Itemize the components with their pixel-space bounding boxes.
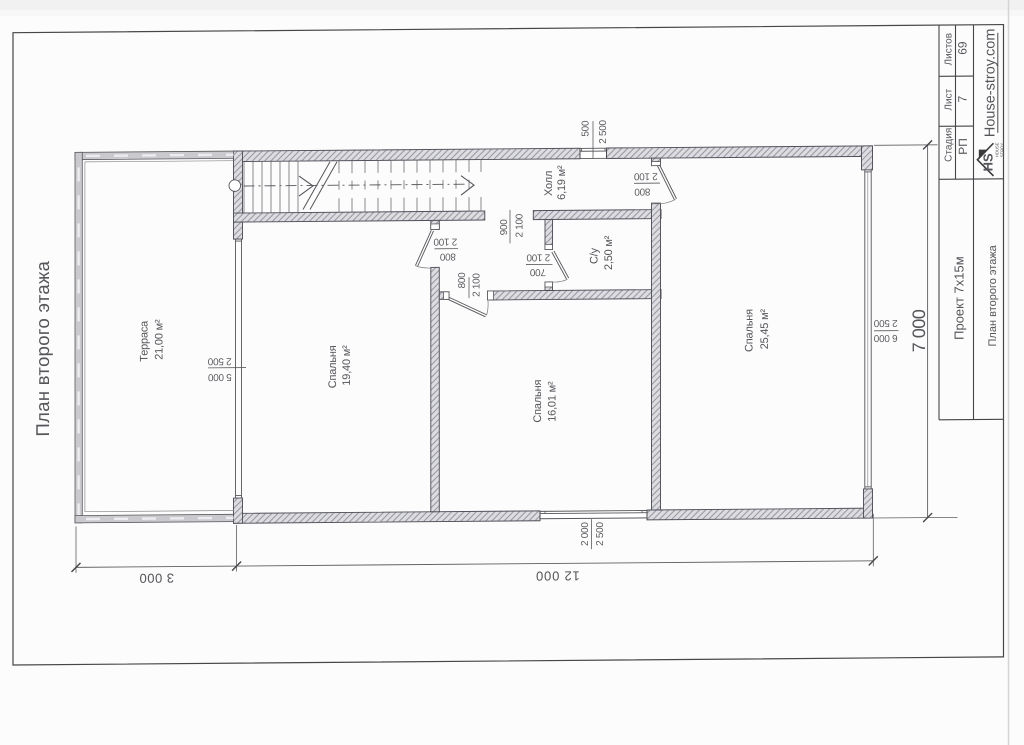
- svg-text:500: 500: [581, 120, 592, 137]
- svg-text:800: 800: [634, 186, 651, 197]
- svg-text:6,19 м²: 6,19 м²: [556, 165, 568, 200]
- svg-text:2 100: 2 100: [526, 251, 550, 262]
- svg-text:Спальня: Спальня: [744, 309, 756, 352]
- svg-text:19,40 м²: 19,40 м²: [341, 345, 353, 386]
- svg-text:План второго этажа: План второго этажа: [32, 260, 53, 436]
- svg-text:7 000: 7 000: [909, 309, 929, 352]
- svg-text:21,00 м²: 21,00 м²: [153, 319, 165, 360]
- svg-text:2 500: 2 500: [873, 317, 897, 328]
- svg-text:69: 69: [956, 41, 970, 55]
- svg-text:2 100: 2 100: [634, 170, 658, 181]
- svg-text:STROY: STROY: [999, 143, 1004, 158]
- svg-text:5 000: 5 000: [208, 371, 232, 382]
- svg-text:800: 800: [439, 251, 456, 262]
- svg-text:Листов: Листов: [944, 33, 955, 66]
- svg-text:2,50 м²: 2,50 м²: [603, 235, 615, 270]
- svg-text:16,01 м²: 16,01 м²: [546, 381, 558, 422]
- svg-text:12 000: 12 000: [535, 568, 580, 583]
- svg-text:2 100: 2 100: [471, 273, 482, 297]
- svg-text:2 500: 2 500: [207, 355, 231, 366]
- svg-text:7: 7: [956, 95, 970, 102]
- svg-text:2 500: 2 500: [595, 522, 606, 546]
- svg-text:Терраса: Терраса: [139, 320, 151, 362]
- svg-text:900: 900: [499, 219, 510, 236]
- svg-text:Лист: Лист: [944, 88, 955, 110]
- svg-text:План второго этажа: План второго этажа: [987, 244, 999, 346]
- svg-text:2 500: 2 500: [598, 120, 609, 144]
- svg-text:Проект 7х15м: Проект 7х15м: [952, 256, 967, 340]
- svg-text:Спальня: Спальня: [327, 345, 339, 388]
- svg-text:25,45 м²: 25,45 м²: [759, 309, 771, 350]
- svg-text:House-stroy.com: House-stroy.com: [983, 29, 999, 138]
- svg-text:2 100: 2 100: [433, 236, 457, 247]
- svg-text:6 000: 6 000: [873, 332, 897, 343]
- svg-text:Холл: Холл: [543, 171, 555, 196]
- svg-text:700: 700: [529, 266, 546, 277]
- svg-text:HS: HS: [981, 153, 996, 172]
- svg-text:Спальня: Спальня: [532, 380, 544, 423]
- svg-text:Стадия: Стадия: [944, 128, 955, 162]
- svg-text:С/у: С/у: [588, 247, 600, 264]
- svg-text:2 100: 2 100: [514, 213, 525, 237]
- svg-text:800: 800: [457, 272, 468, 289]
- svg-text:3 000: 3 000: [139, 571, 174, 586]
- svg-text:2 000: 2 000: [580, 522, 591, 546]
- svg-text:РП: РП: [956, 138, 970, 155]
